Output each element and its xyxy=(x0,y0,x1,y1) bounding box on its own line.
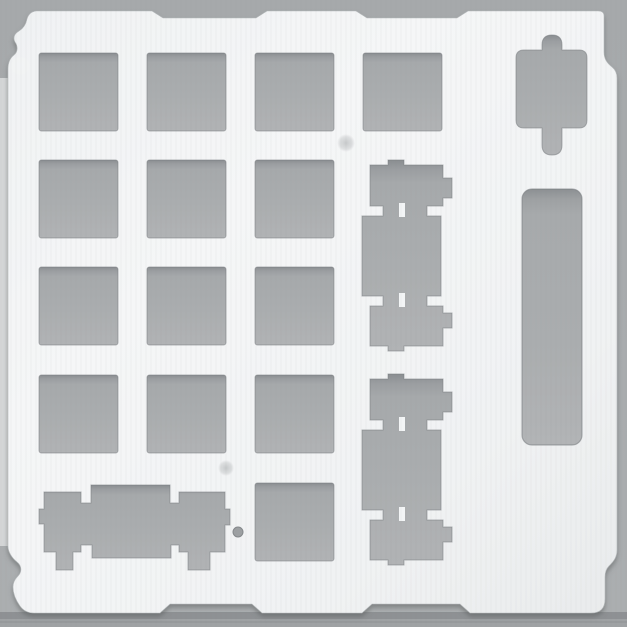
plate-photo xyxy=(0,0,627,627)
keyboard-plate-scene xyxy=(0,0,627,627)
photo-texture-overlay xyxy=(0,0,627,627)
